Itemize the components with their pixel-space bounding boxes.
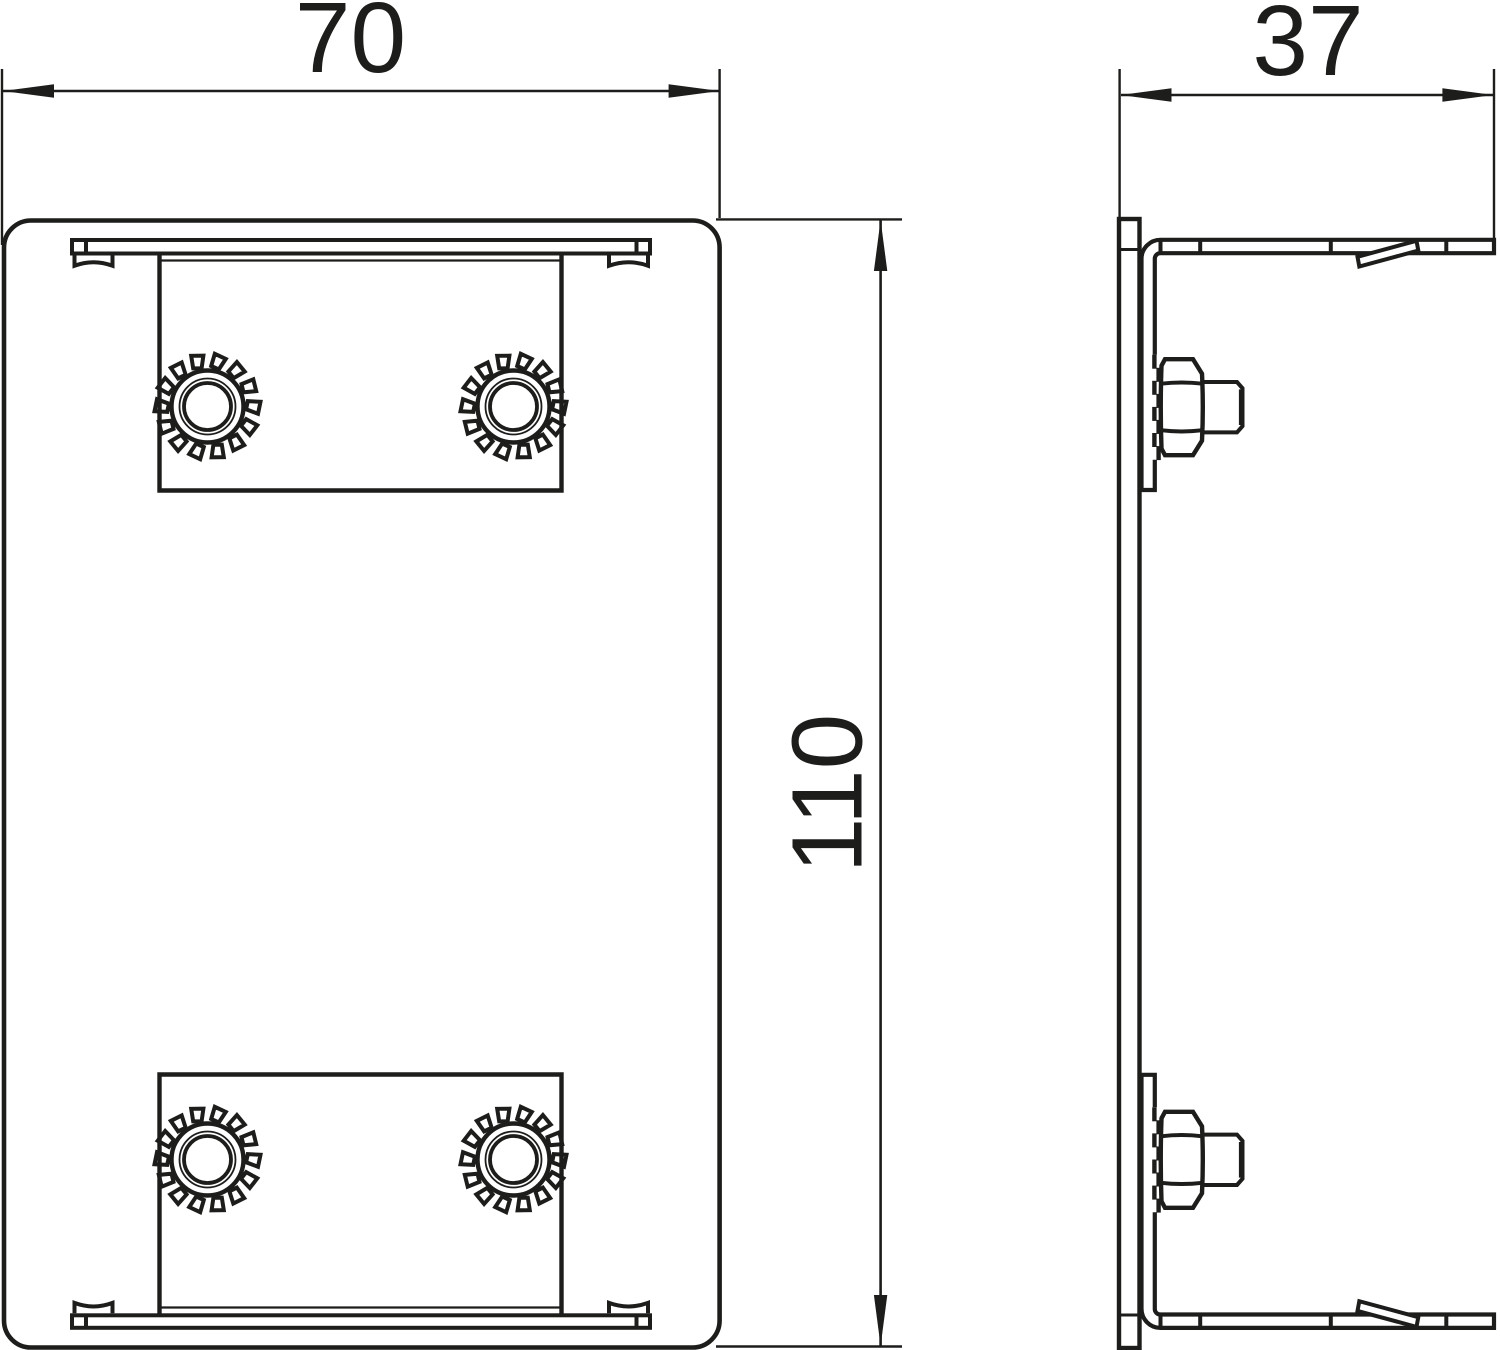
svg-text:110: 110	[772, 714, 884, 873]
svg-text:70: 70	[295, 0, 406, 94]
svg-text:37: 37	[1252, 0, 1363, 97]
